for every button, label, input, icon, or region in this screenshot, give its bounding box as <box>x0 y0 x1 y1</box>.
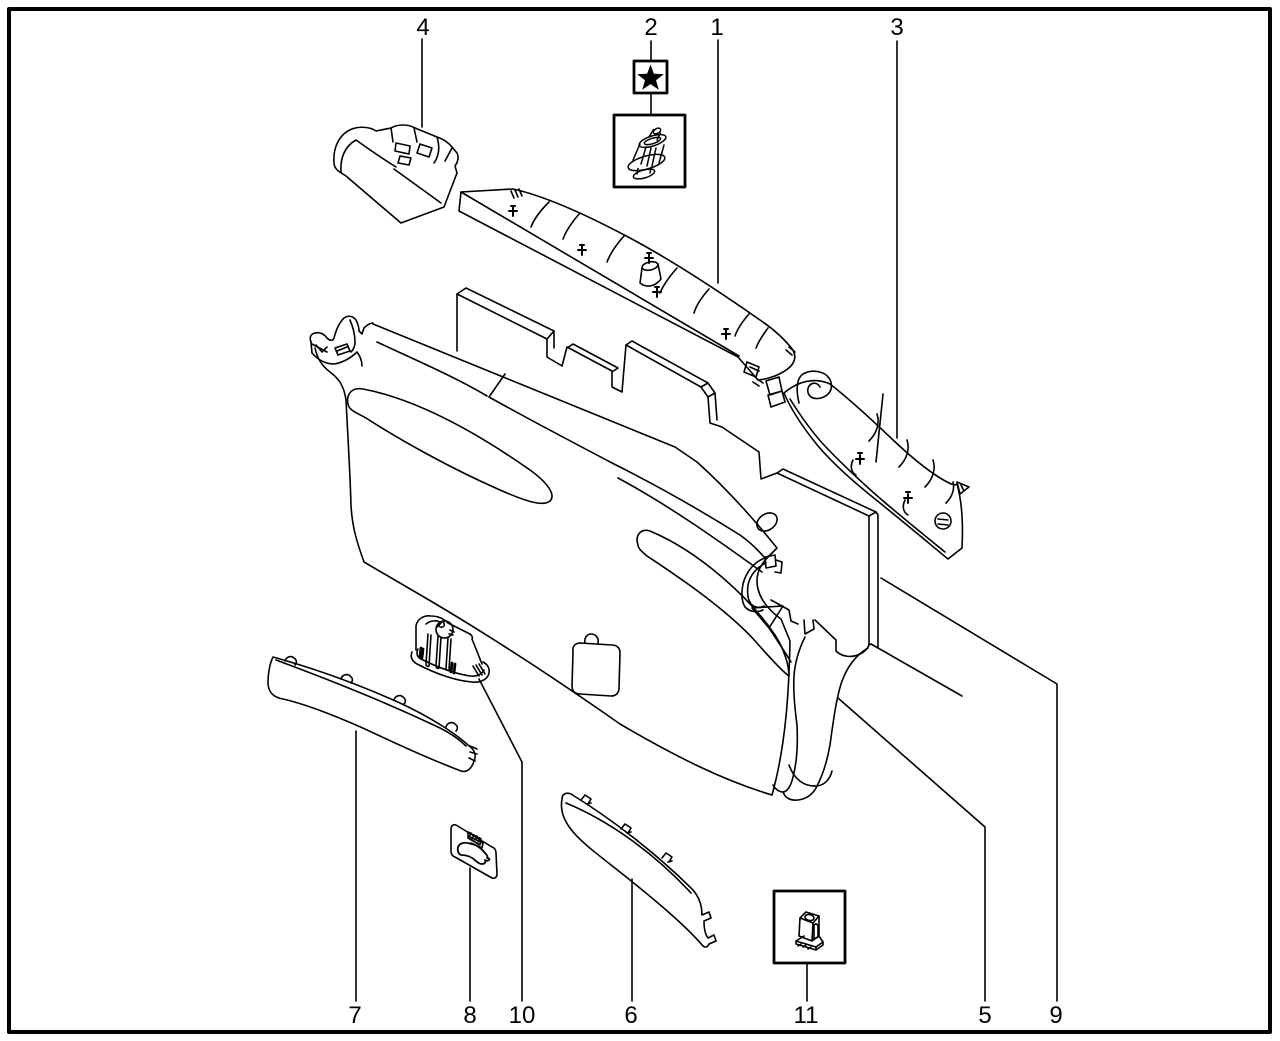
svg-text:8: 8 <box>463 1002 476 1029</box>
svg-text:2: 2 <box>644 14 657 41</box>
svg-text:11: 11 <box>794 1002 819 1029</box>
svg-text:1: 1 <box>710 14 723 41</box>
svg-text:4: 4 <box>416 14 429 41</box>
svg-text:6: 6 <box>624 1002 637 1029</box>
svg-text:7: 7 <box>348 1002 361 1029</box>
svg-text:5: 5 <box>978 1002 991 1029</box>
svg-text:10: 10 <box>509 1002 536 1029</box>
svg-text:9: 9 <box>1049 1002 1062 1029</box>
svg-text:3: 3 <box>890 14 903 41</box>
